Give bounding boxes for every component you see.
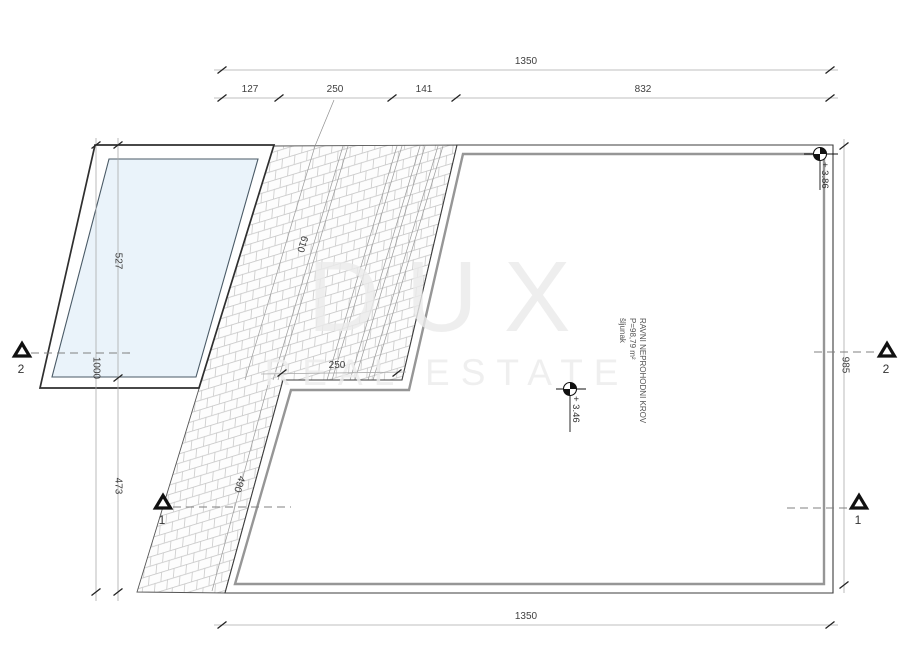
dim-left-total: 1000 <box>91 357 102 380</box>
section-2-right-icon <box>880 344 895 357</box>
dim-top-seg-2: 250 <box>327 84 344 95</box>
watermark: DUX REAL ESTATE <box>265 241 630 393</box>
section-1-right-label: 1 <box>855 513 862 527</box>
room-name: RAVNI NEPROHODNI KROV <box>638 318 647 424</box>
section-1-left-label: 1 <box>159 513 166 527</box>
floor-plan-page: DUX REAL ESTATE 1350 127 250 141 832 135… <box>0 0 924 646</box>
elevation-point-icon <box>564 383 577 396</box>
watermark-brand: DUX <box>307 241 596 353</box>
room-material: šljunak <box>618 318 627 344</box>
dim-left-seg-lower: 473 <box>113 478 124 495</box>
section-1-right-icon <box>852 496 867 509</box>
dim-top-seg-3: 141 <box>416 84 433 95</box>
dim-ramp-step-width: 250 <box>329 360 346 371</box>
floor-plan-drawing: DUX REAL ESTATE 1350 127 250 141 832 135… <box>0 0 924 646</box>
elevation-parapet-value: + 3.86 <box>819 162 830 189</box>
dim-top-seg-1: 127 <box>242 84 259 95</box>
elevation-point-icon <box>814 148 827 161</box>
elevation-roof-value: + 3.46 <box>570 396 581 423</box>
dim-top-total: 1350 <box>515 56 538 67</box>
dim-left-seg-upper: 527 <box>113 253 124 270</box>
dim-right-height: 985 <box>840 357 851 374</box>
dim-top-seg-4: 832 <box>635 84 652 95</box>
section-2-left-icon <box>15 344 30 357</box>
section-2-left-label: 2 <box>18 362 25 376</box>
room-area: P=98,79 m² <box>628 318 637 360</box>
section-2-right-label: 2 <box>883 362 890 376</box>
dim-bottom-total: 1350 <box>515 611 538 622</box>
